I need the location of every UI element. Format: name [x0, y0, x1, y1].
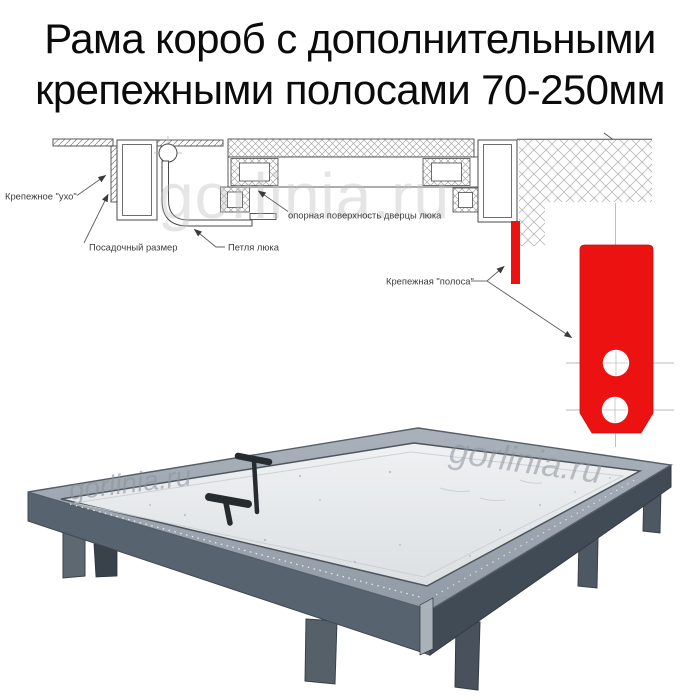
label-fixing-strip: Крепежная "полоса" [386, 276, 474, 287]
leader-hinge [195, 230, 226, 248]
label-fixing-ear: Крепежное "ухо" [5, 191, 77, 202]
watermark-drawing: gorlinia.ru [158, 160, 450, 232]
leg-front-left [305, 619, 337, 684]
fixing-ear-flange [111, 146, 117, 202]
label-mounting-size: Посадочный размер [89, 242, 177, 253]
wall-hatch [517, 133, 652, 246]
frame-profile-left [117, 140, 157, 220]
handle-front-stem [226, 503, 230, 523]
label-support-surface: опорная поверхность дверцы люка [288, 210, 442, 221]
product-photo: gorlinia.ru gorlinia.ru [28, 428, 671, 690]
fastening-strip-section [511, 221, 520, 284]
product-image: Рама короб с дополнительными крепежными … [0, 0, 700, 700]
fastening-plate [580, 245, 653, 433]
label-hinge: Петля люка [228, 242, 280, 253]
diagram-and-photo-canvas: gorlinia.ru [0, 0, 700, 700]
leader-strip-plate [487, 281, 572, 338]
handle-back-stem [254, 461, 257, 512]
leader-mounting-size [84, 195, 108, 244]
frame-profile-right [478, 140, 517, 222]
frame-corner-channel [420, 598, 433, 655]
leader-ear [77, 176, 106, 196]
ceiling-bar-left [53, 139, 113, 146]
leader-strip-section [487, 267, 504, 282]
technical-drawing: gorlinia.ru [5, 133, 674, 447]
